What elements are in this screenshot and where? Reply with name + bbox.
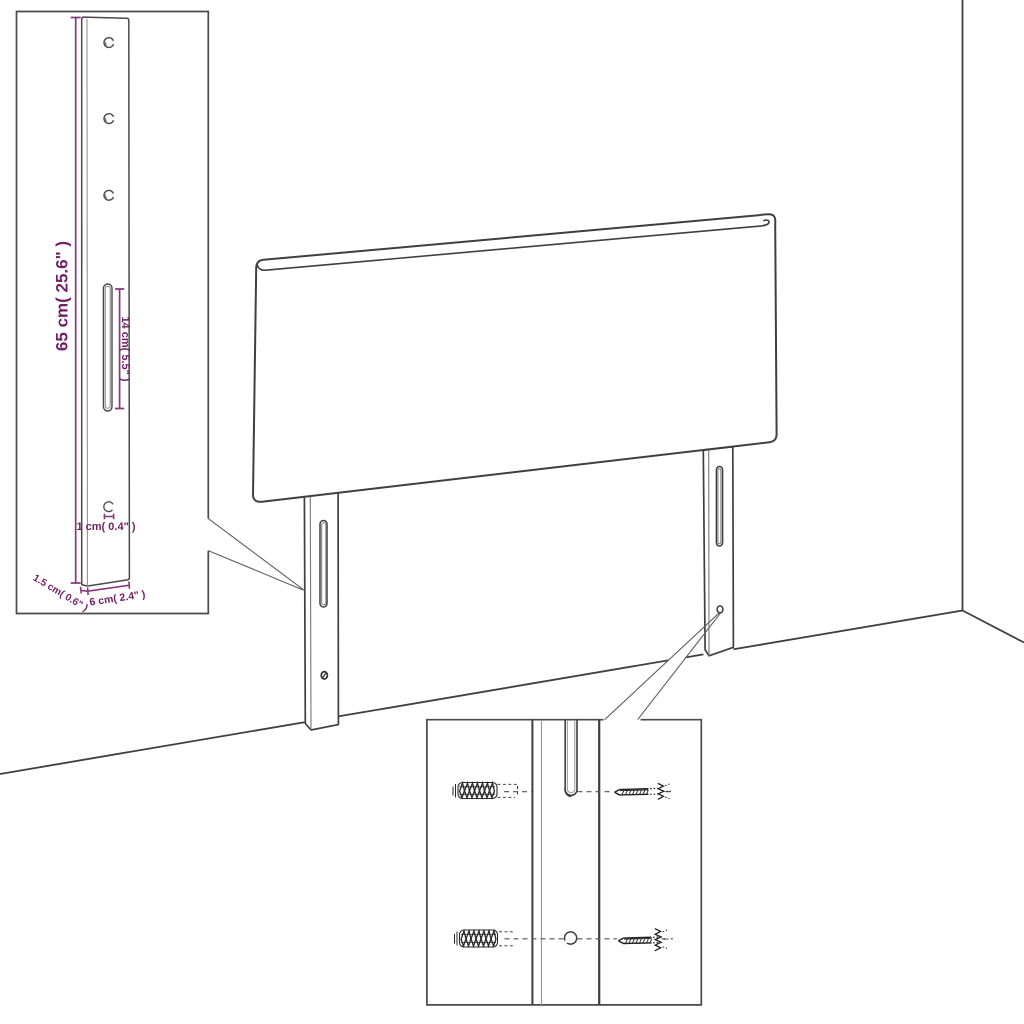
svg-text:65 cm( 25.6" ): 65 cm( 25.6" ) bbox=[53, 241, 72, 351]
svg-text:14 cm( 5.5" ): 14 cm( 5.5" ) bbox=[119, 316, 131, 381]
svg-text:1 cm( 0.4" ): 1 cm( 0.4" ) bbox=[76, 521, 135, 533]
